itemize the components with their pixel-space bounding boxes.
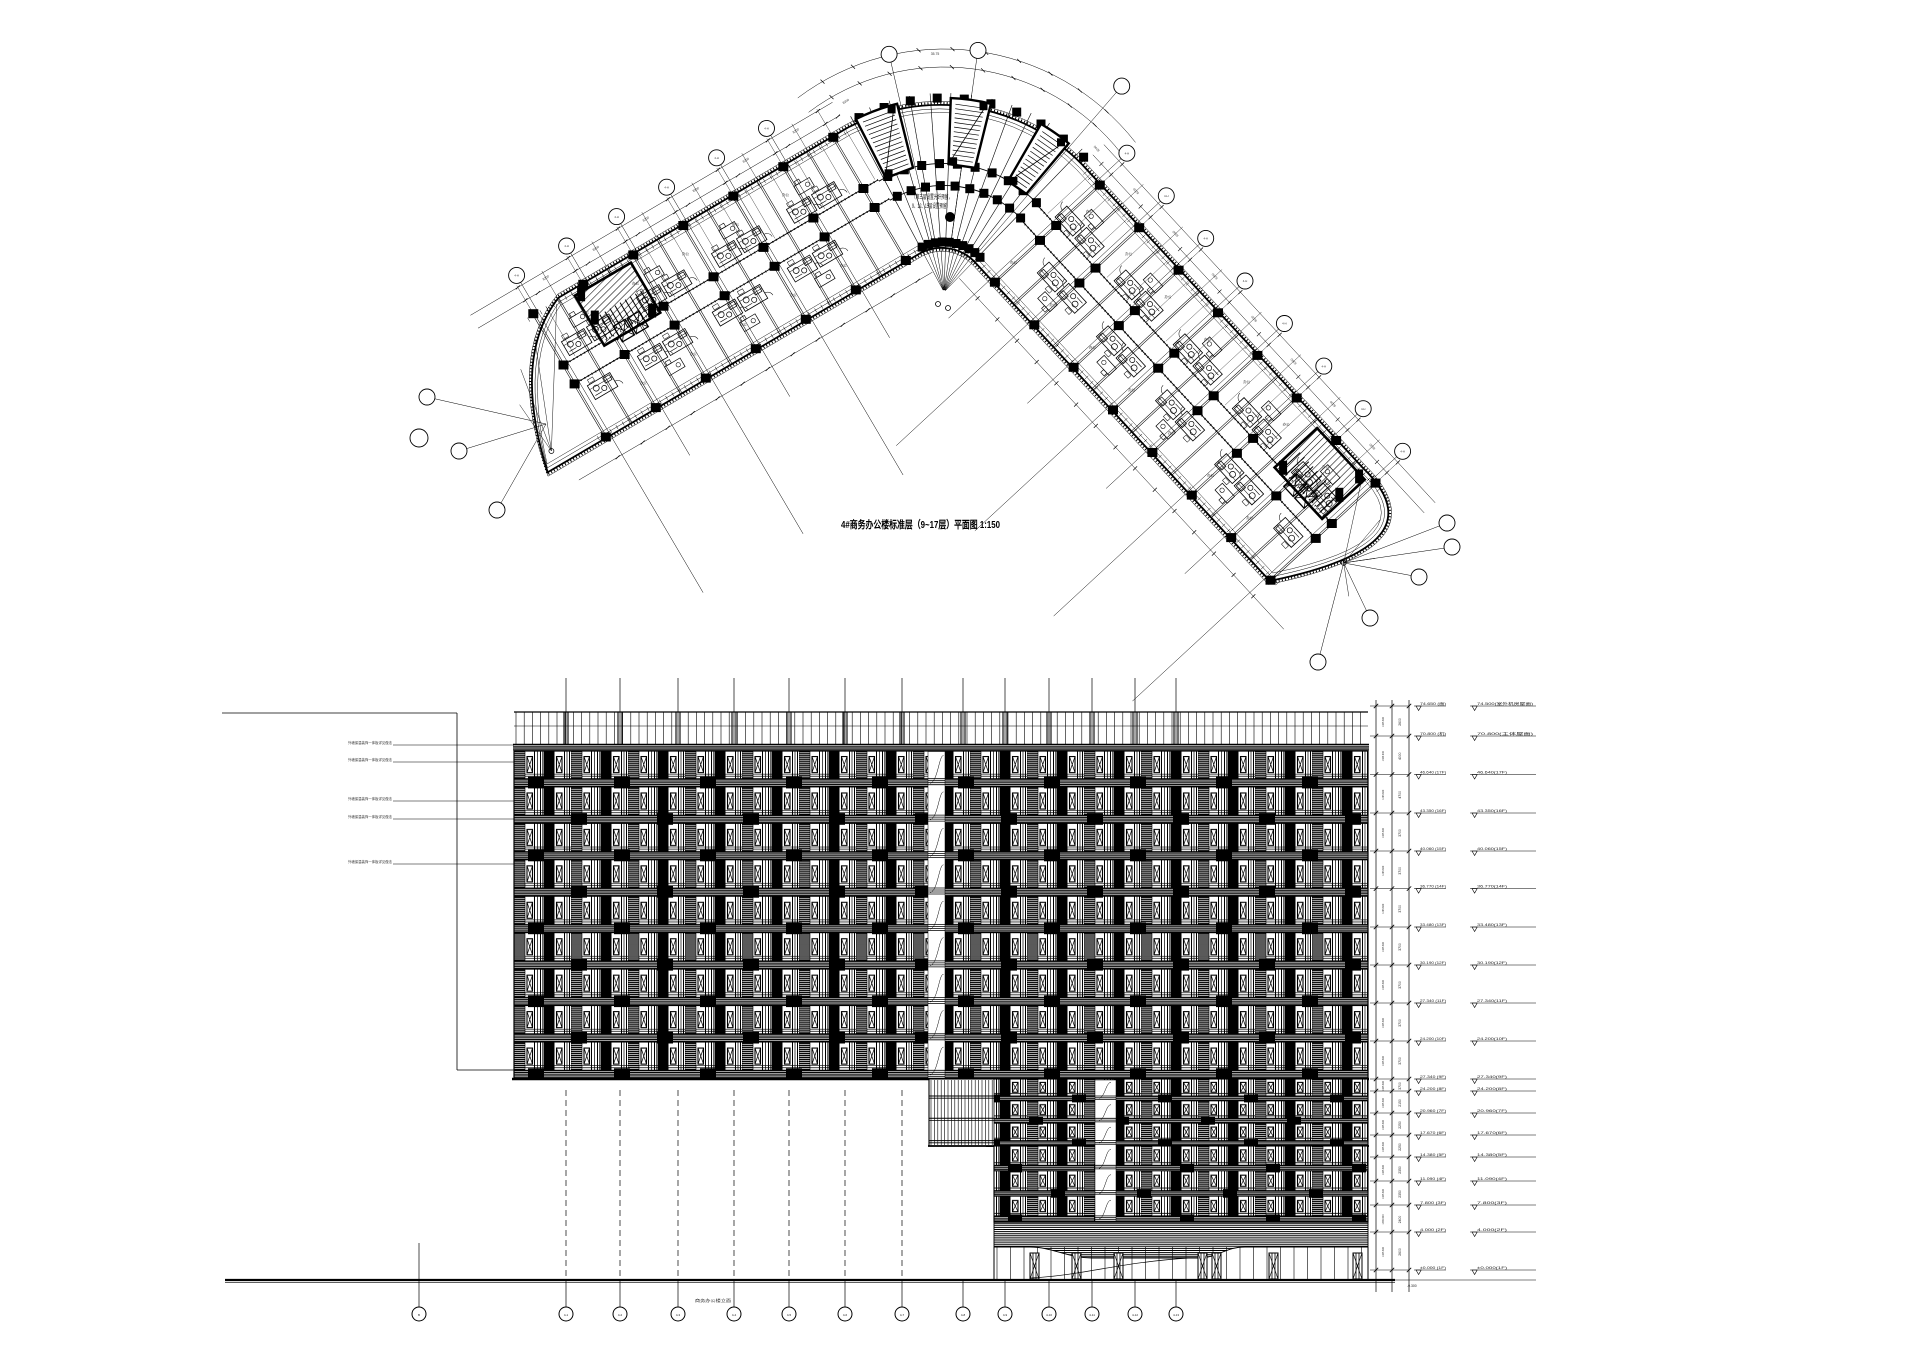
svg-text:14.380(5F): 14.380(5F) xyxy=(1477,1153,1507,1157)
svg-text:1485 800: 1485 800 xyxy=(1382,1188,1385,1199)
svg-text:4-12: 4-12 xyxy=(1132,1313,1138,1317)
svg-text:1485 800: 1485 800 xyxy=(1382,751,1385,762)
svg-text:9、12、15层设置预留）: 9、12、15层设置预留） xyxy=(912,202,950,210)
svg-text:4-H: 4-H xyxy=(614,215,619,219)
svg-text:35.75: 35.75 xyxy=(931,52,940,56)
svg-text:办公: 办公 xyxy=(690,351,698,356)
svg-text:40.060(15F): 40.060(15F) xyxy=(1477,847,1507,851)
svg-text:4-9: 4-9 xyxy=(1003,1313,1008,1317)
svg-text:4-11: 4-11 xyxy=(1089,1313,1095,1317)
svg-text:30.190 (12F): 30.190 (12F) xyxy=(1420,961,1446,965)
svg-text:外墙保温装饰一体板详见做法: 外墙保温装饰一体板详见做法 xyxy=(348,796,393,801)
svg-text:1485 800: 1485 800 xyxy=(1382,1214,1385,1225)
svg-text:33.480(13F): 33.480(13F) xyxy=(1477,923,1507,927)
svg-text:3700: 3700 xyxy=(1398,905,1402,913)
svg-text:2150: 2150 xyxy=(1398,1099,1402,1107)
svg-text:4-H: 4-H xyxy=(1322,364,1327,368)
svg-text:-0.300: -0.300 xyxy=(1407,1284,1417,1288)
svg-text:70.800 (机): 70.800 (机) xyxy=(1420,731,1446,736)
svg-text:1485 800: 1485 800 xyxy=(1382,1141,1385,1152)
svg-text:4000: 4000 xyxy=(1398,752,1402,760)
svg-text:27.340 (9F): 27.340 (9F) xyxy=(1420,1075,1446,1079)
svg-text:4-H: 4-H xyxy=(1282,322,1287,326)
svg-text:±0.000 (1F): ±0.000 (1F) xyxy=(1420,1266,1446,1270)
svg-text:7.800(3F): 7.800(3F) xyxy=(1477,1201,1507,1205)
svg-text:B: B xyxy=(418,1313,420,1317)
svg-text:1485 800: 1485 800 xyxy=(1382,903,1385,914)
svg-text:3700: 3700 xyxy=(1398,943,1402,951)
svg-text:3700: 3700 xyxy=(1398,1057,1402,1065)
svg-text:74.500(室外机房屋面): 74.500(室外机房屋面) xyxy=(1477,701,1533,706)
svg-text:3700: 3700 xyxy=(1398,829,1402,837)
svg-text:4-H: 4-H xyxy=(1361,407,1366,411)
svg-text:20.960(7F): 20.960(7F) xyxy=(1477,1109,1507,1113)
svg-text:3700: 3700 xyxy=(1398,1019,1402,1027)
svg-text:2400: 2400 xyxy=(1398,1216,1402,1224)
svg-text:2600: 2600 xyxy=(1398,1248,1402,1256)
svg-text:4.000 (2F): 4.000 (2F) xyxy=(1420,1228,1446,1232)
svg-text:4.000(2F): 4.000(2F) xyxy=(1477,1228,1507,1232)
svg-text:43.350(16F): 43.350(16F) xyxy=(1477,809,1507,813)
svg-text:办公: 办公 xyxy=(1165,294,1173,299)
svg-text:4-1: 4-1 xyxy=(564,1313,569,1317)
svg-text:1485 800: 1485 800 xyxy=(1382,865,1385,876)
svg-text:办公: 办公 xyxy=(1243,379,1251,384)
svg-text:1485 800: 1485 800 xyxy=(1382,1119,1385,1130)
svg-text:4#商务办公楼标准层（9~17层）平面图 1:150: 4#商务办公楼标准层（9~17层）平面图 1:150 xyxy=(841,518,1000,531)
svg-text:70.800(主体屋面): 70.800(主体屋面) xyxy=(1477,731,1533,736)
svg-text:24.200(8F): 24.200(8F) xyxy=(1477,1087,1507,1091)
svg-text:4-6: 4-6 xyxy=(843,1313,848,1317)
svg-text:4-H: 4-H xyxy=(664,185,669,189)
svg-text:46.640 (17F): 46.640 (17F) xyxy=(1420,770,1446,774)
svg-text:1485 800: 1485 800 xyxy=(1382,1080,1385,1091)
svg-text:办公: 办公 xyxy=(1089,345,1097,350)
svg-text:1485 800: 1485 800 xyxy=(1382,827,1385,838)
svg-text:2350: 2350 xyxy=(1398,1166,1402,1174)
svg-text:1485 800: 1485 800 xyxy=(1382,979,1385,990)
svg-text:办公: 办公 xyxy=(1246,515,1254,520)
svg-text:外墙保温装饰一体板详见做法: 外墙保温装饰一体板详见做法 xyxy=(348,740,393,745)
svg-text:办公: 办公 xyxy=(1086,209,1094,214)
svg-text:4-3: 4-3 xyxy=(676,1313,681,1317)
svg-text:办公: 办公 xyxy=(632,280,640,285)
svg-text:3700: 3700 xyxy=(1398,1082,1402,1090)
svg-text:4-H: 4-H xyxy=(764,127,769,131)
svg-text:4-4: 4-4 xyxy=(732,1313,737,1317)
svg-text:4-H: 4-H xyxy=(714,156,719,160)
svg-text:4-10: 4-10 xyxy=(1046,1313,1052,1317)
svg-text:4-H: 4-H xyxy=(514,274,519,278)
svg-text:办公: 办公 xyxy=(1207,472,1215,477)
svg-text:办公: 办公 xyxy=(740,321,748,326)
svg-text:4-H: 4-H xyxy=(1164,194,1169,198)
svg-text:商务办公楼立面: 商务办公楼立面 xyxy=(695,1297,731,1303)
svg-text:40.060 (15F): 40.060 (15F) xyxy=(1420,847,1446,851)
svg-text:27.340(9F): 27.340(9F) xyxy=(1477,1075,1507,1079)
svg-text:4700: 4700 xyxy=(1398,791,1402,799)
svg-text:外墙保温装饰一体板详见做法: 外墙保温装饰一体板详见做法 xyxy=(348,814,393,819)
svg-text:2600: 2600 xyxy=(1398,718,1402,726)
svg-text:36.770(14F): 36.770(14F) xyxy=(1477,884,1507,888)
svg-text:1485 800: 1485 800 xyxy=(1382,1017,1385,1028)
svg-text:46.640(17F): 46.640(17F) xyxy=(1477,770,1507,774)
svg-text:1485 800: 1485 800 xyxy=(1382,1246,1385,1257)
svg-text:24.200 (8F): 24.200 (8F) xyxy=(1420,1087,1446,1091)
svg-text:7.800 (3F): 7.800 (3F) xyxy=(1420,1201,1446,1205)
svg-text:办公: 办公 xyxy=(1128,387,1136,392)
svg-text:办公: 办公 xyxy=(790,292,798,297)
svg-text:4-H: 4-H xyxy=(1125,151,1130,155)
svg-text:20.960 (7F): 20.960 (7F) xyxy=(1420,1109,1446,1113)
svg-text:办公: 办公 xyxy=(1168,430,1176,435)
svg-text:17.670(6F): 17.670(6F) xyxy=(1477,1131,1507,1135)
svg-text:14.380 (5F): 14.380 (5F) xyxy=(1420,1153,1446,1157)
svg-text:办公: 办公 xyxy=(1050,302,1058,307)
svg-text:4-7: 4-7 xyxy=(900,1313,905,1317)
svg-text:4-2: 4-2 xyxy=(618,1313,623,1317)
svg-text:办公: 办公 xyxy=(732,222,740,227)
svg-text:3700: 3700 xyxy=(1398,867,1402,875)
svg-text:1485 800: 1485 800 xyxy=(1382,716,1385,727)
svg-text:17.670 (6F): 17.670 (6F) xyxy=(1420,1131,1446,1135)
svg-text:4-H: 4-H xyxy=(1400,450,1405,454)
svg-text:24.200 (10F): 24.200 (10F) xyxy=(1420,1037,1446,1041)
svg-text:办公: 办公 xyxy=(582,310,590,315)
svg-text:2350: 2350 xyxy=(1398,1190,1402,1198)
svg-text:外墙保温装饰一体板详见做法: 外墙保温装饰一体板详见做法 xyxy=(348,859,393,864)
svg-text:4-H: 4-H xyxy=(564,244,569,248)
svg-text:4-H: 4-H xyxy=(1203,237,1208,241)
svg-text:外墙保温装饰一体板详见做法: 外墙保温装饰一体板详见做法 xyxy=(348,757,393,762)
svg-text:办公: 办公 xyxy=(840,263,848,268)
svg-text:1485 800: 1485 800 xyxy=(1382,941,1385,952)
svg-text:11.090 (4F): 11.090 (4F) xyxy=(1420,1177,1446,1181)
svg-text:4-8: 4-8 xyxy=(961,1313,966,1317)
svg-text:（第三层设置光纤预留，: （第三层设置光纤预留， xyxy=(912,193,952,201)
svg-text:办公: 办公 xyxy=(1283,422,1291,427)
svg-text:74.650 (面): 74.650 (面) xyxy=(1420,701,1446,706)
svg-text:1485 800: 1485 800 xyxy=(1382,1097,1385,1108)
svg-text:43.350 (16F): 43.350 (16F) xyxy=(1420,809,1446,813)
svg-text:办公: 办公 xyxy=(682,251,690,256)
svg-text:办公: 办公 xyxy=(640,380,648,385)
svg-text:30.190(12F): 30.190(12F) xyxy=(1477,961,1507,965)
svg-text:24.200(10F): 24.200(10F) xyxy=(1477,1037,1507,1041)
svg-text:1485 800: 1485 800 xyxy=(1382,1055,1385,1066)
svg-text:11.090(4F): 11.090(4F) xyxy=(1477,1177,1507,1181)
svg-text:办公: 办公 xyxy=(1010,260,1018,265)
svg-text:4-5: 4-5 xyxy=(787,1313,792,1317)
svg-text:办公: 办公 xyxy=(1204,336,1212,341)
svg-text:1485 800: 1485 800 xyxy=(1382,789,1385,800)
svg-text:33.480 (13F): 33.480 (13F) xyxy=(1420,923,1446,927)
svg-text:办公: 办公 xyxy=(1322,464,1330,469)
svg-text:3700: 3700 xyxy=(1398,981,1402,989)
svg-text:办公: 办公 xyxy=(1125,251,1133,256)
svg-text:4-H: 4-H xyxy=(1243,279,1248,283)
svg-text:2250: 2250 xyxy=(1398,1121,1402,1129)
svg-text:±0.000(1F): ±0.000(1F) xyxy=(1477,1266,1507,1270)
svg-text:27.340 (11F): 27.340 (11F) xyxy=(1420,999,1446,1003)
svg-text:27.340(11F): 27.340(11F) xyxy=(1477,999,1507,1003)
svg-text:2250: 2250 xyxy=(1398,1143,1402,1151)
svg-text:4-13: 4-13 xyxy=(1173,1313,1179,1317)
svg-text:1485 800: 1485 800 xyxy=(1382,1164,1385,1175)
svg-text:办公: 办公 xyxy=(782,192,790,197)
svg-text:36.770 (14F): 36.770 (14F) xyxy=(1420,884,1446,888)
